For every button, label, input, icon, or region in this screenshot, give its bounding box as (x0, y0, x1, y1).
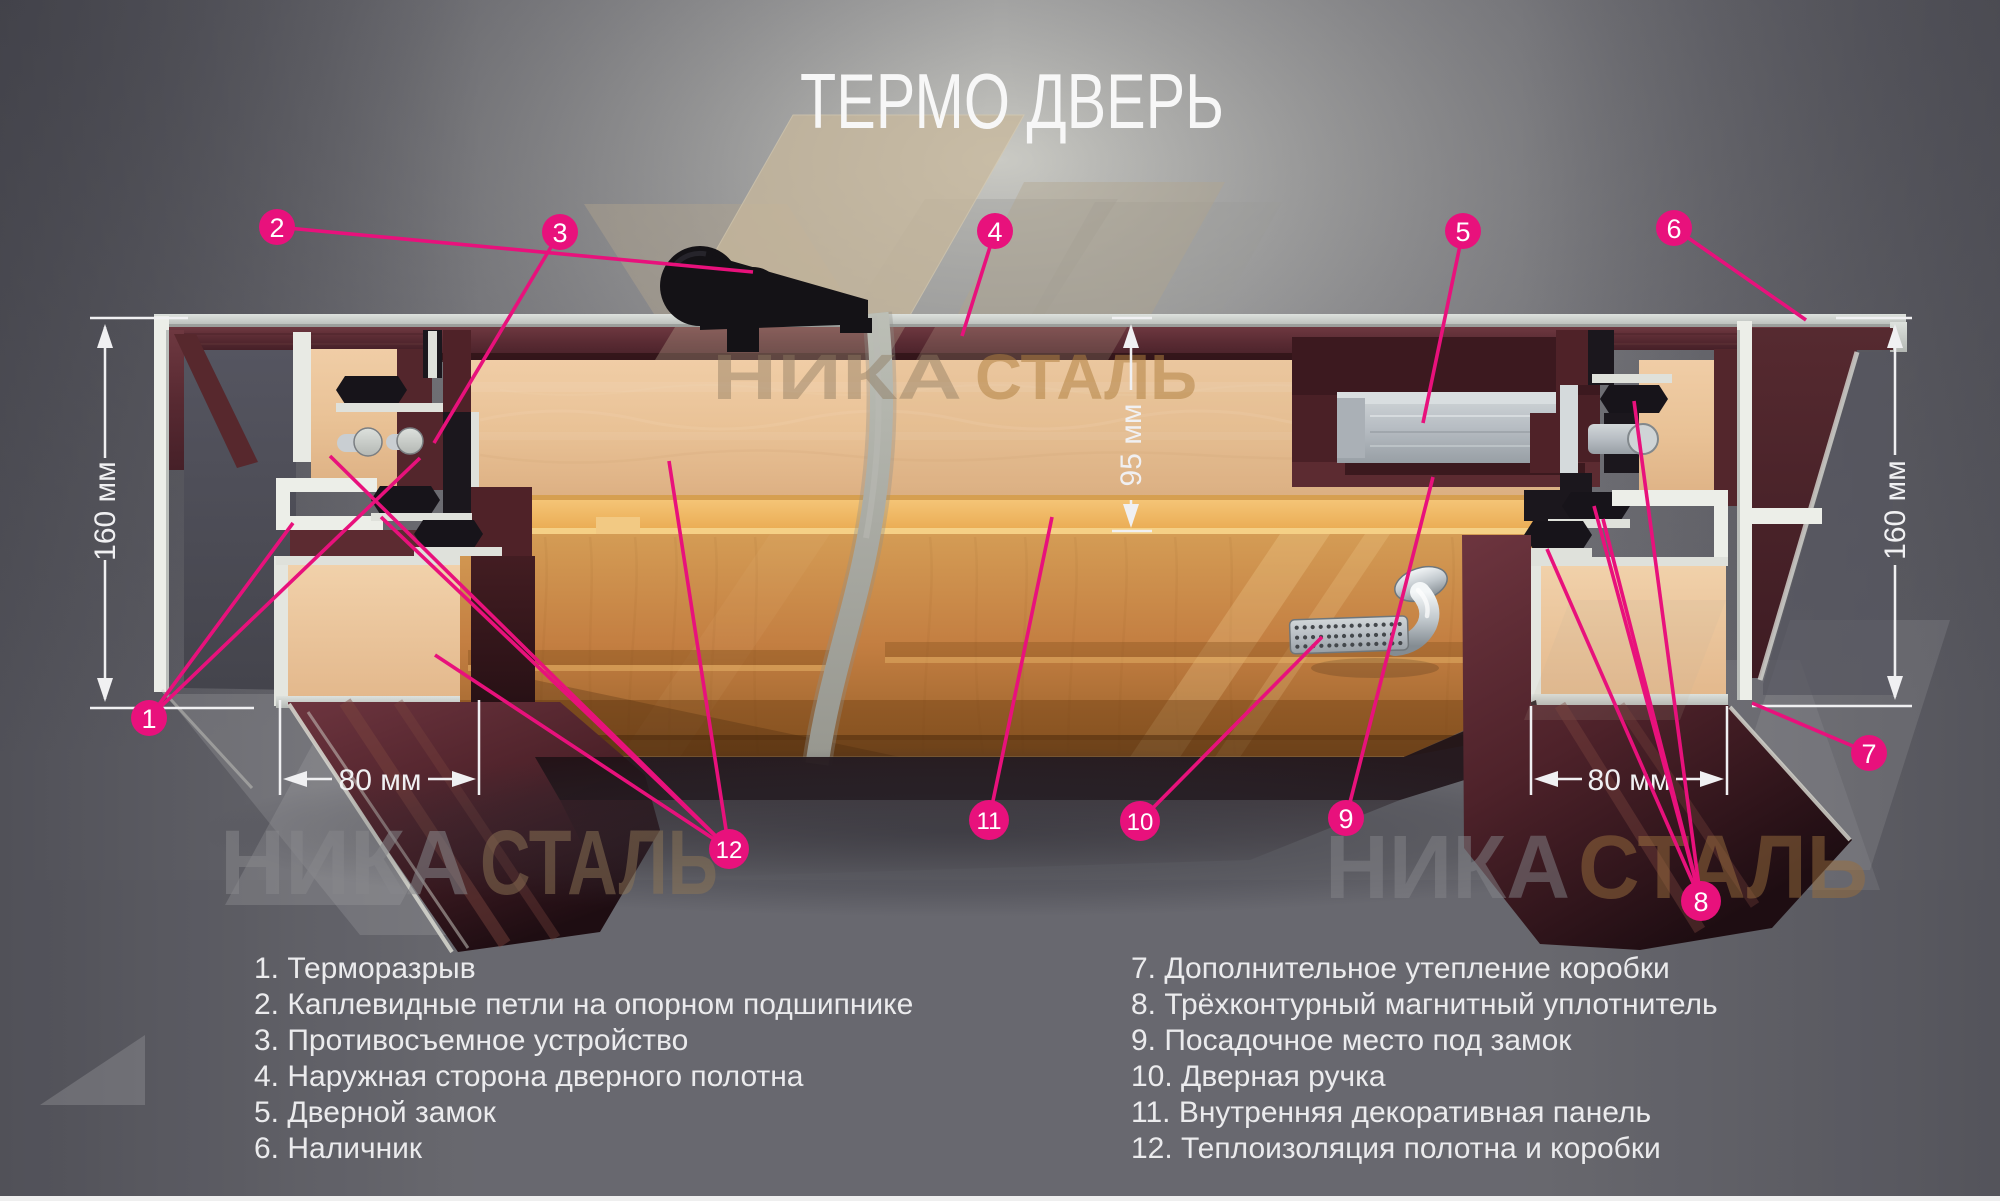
svg-text:2: 2 (269, 213, 284, 243)
svg-text:10: 10 (1127, 809, 1154, 836)
svg-text:6: 6 (1666, 214, 1681, 244)
svg-text:СТАЛЬ: СТАЛЬ (1578, 818, 1868, 918)
svg-text:НИКА: НИКА (1325, 818, 1570, 918)
svg-text:НИКА: НИКА (220, 812, 470, 914)
svg-text:12. Теплоизоляция полотна и ко: 12. Теплоизоляция полотна и коробки (1131, 1132, 1661, 1165)
svg-text:11: 11 (977, 808, 1002, 835)
svg-text:10. Дверная ручка: 10. Дверная ручка (1131, 1060, 1386, 1093)
svg-text:160 мм: 160 мм (89, 461, 122, 561)
svg-text:3: 3 (552, 218, 567, 248)
svg-text:8: 8 (1693, 887, 1708, 917)
svg-text:3. Противосъемное устройство: 3. Противосъемное устройство (254, 1024, 688, 1057)
svg-text:5. Дверной замок: 5. Дверной замок (254, 1096, 497, 1129)
svg-text:4: 4 (987, 217, 1002, 247)
svg-text:СТАЛЬ: СТАЛЬ (480, 812, 718, 914)
svg-text:1. Терморазрыв: 1. Терморазрыв (254, 952, 476, 985)
svg-text:СТАЛЬ: СТАЛЬ (975, 341, 1197, 413)
svg-text:НИКА: НИКА (712, 341, 962, 413)
svg-text:6. Наличник: 6. Наличник (254, 1132, 423, 1165)
svg-text:9: 9 (1338, 804, 1353, 834)
svg-text:9. Посадочное место под замок: 9. Посадочное место под замок (1131, 1024, 1572, 1057)
svg-text:2. Каплевидные петли на опорно: 2. Каплевидные петли на опорном подшипни… (254, 988, 913, 1021)
svg-text:7: 7 (1861, 739, 1876, 769)
svg-text:11. Внутренняя декоративная па: 11. Внутренняя декоративная панель (1131, 1096, 1651, 1129)
svg-text:4. Наружная сторона дверного п: 4. Наружная сторона дверного полотна (254, 1060, 804, 1093)
svg-text:1: 1 (141, 704, 156, 734)
svg-text:5: 5 (1455, 217, 1470, 247)
svg-text:7. Дополнительное утепление ко: 7. Дополнительное утепление коробки (1131, 952, 1670, 985)
svg-text:80 мм: 80 мм (339, 764, 422, 797)
svg-text:12: 12 (716, 837, 743, 864)
svg-text:95 мм: 95 мм (1115, 404, 1148, 487)
svg-text:8. Трёхконтурный магнитный упл: 8. Трёхконтурный магнитный уплотнитель (1131, 988, 1718, 1021)
svg-text:ТЕРМО ДВЕРЬ: ТЕРМО ДВЕРЬ (800, 57, 1224, 145)
svg-text:80 мм: 80 мм (1588, 764, 1671, 797)
svg-text:160 мм: 160 мм (1879, 460, 1912, 560)
